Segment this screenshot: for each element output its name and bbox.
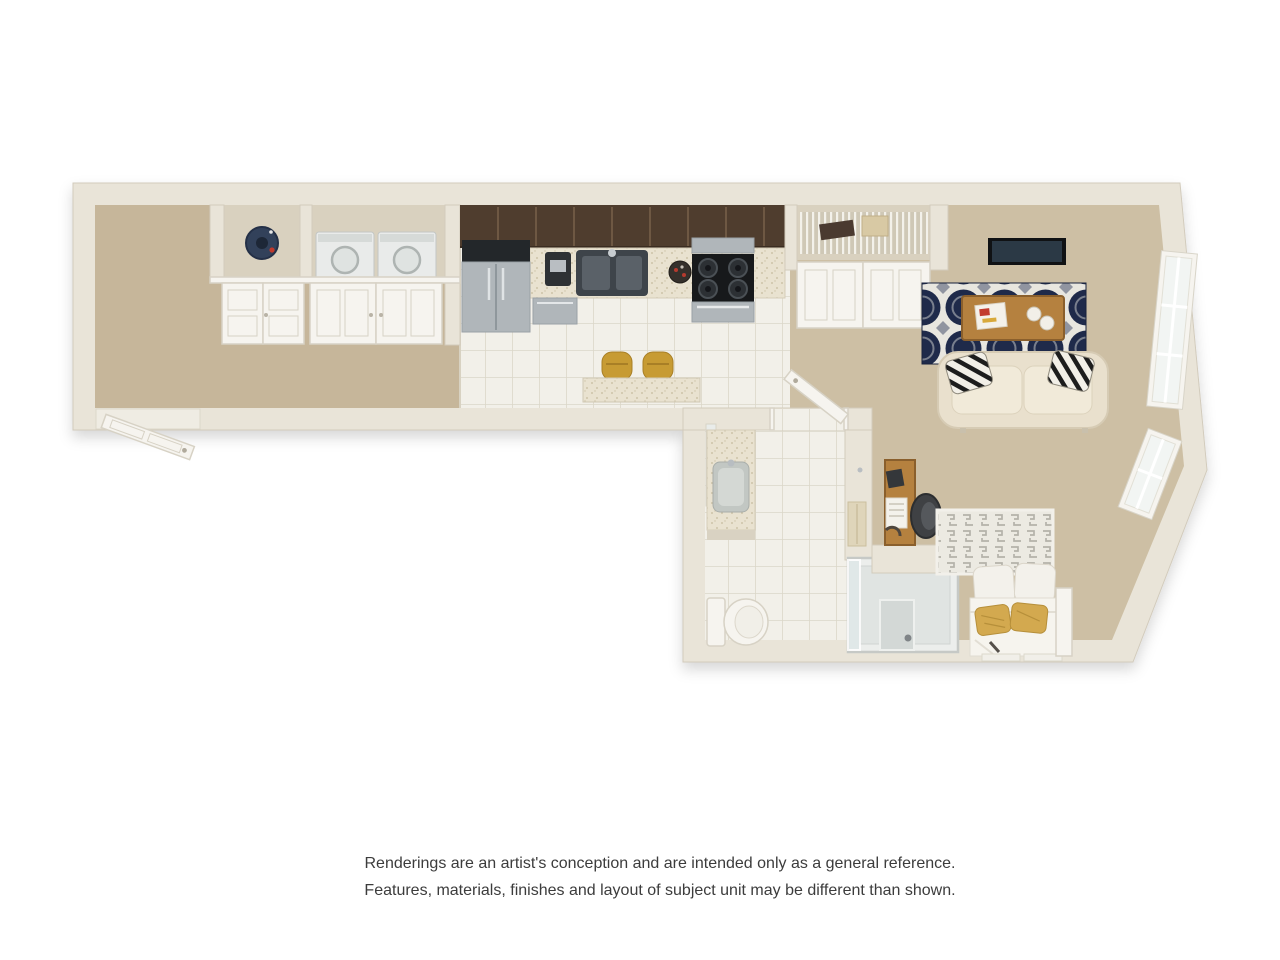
breakfast-bar <box>583 378 700 402</box>
bed-pillow <box>1014 563 1056 603</box>
faucet <box>728 460 735 467</box>
gold-pillow <box>1010 602 1049 634</box>
toilet <box>707 598 768 646</box>
laundry-closet-doors <box>310 283 442 344</box>
shower-door <box>880 600 914 650</box>
coffee-maker <box>545 252 571 286</box>
faucet <box>608 249 616 257</box>
door-knob <box>264 313 268 317</box>
gold-pillow <box>974 604 1012 636</box>
coffee-table <box>962 296 1064 340</box>
closet-divider-wall <box>210 205 224 283</box>
water-heater <box>246 227 278 259</box>
bed-base <box>982 654 1020 661</box>
pantry-wall <box>785 205 797 270</box>
sofa-leg <box>960 428 966 433</box>
wall-mounted-tv <box>988 238 1066 265</box>
side-panel <box>1056 588 1072 656</box>
closet-divider-wall <box>445 205 460 345</box>
pantry-wall <box>930 205 948 270</box>
dryer <box>378 232 436 280</box>
utility-closet <box>210 205 300 283</box>
washer <box>316 232 374 280</box>
floor-plan-rendering <box>0 0 1280 830</box>
refrigerator <box>462 240 530 332</box>
decor-bowl <box>669 261 691 283</box>
paper <box>886 498 907 528</box>
entry-door <box>96 409 200 460</box>
sofa-leg <box>1082 428 1088 433</box>
storage-box <box>862 216 888 236</box>
kitchen-sink <box>576 249 648 296</box>
oven-front <box>692 302 754 322</box>
closet-header <box>210 277 460 283</box>
utility-closet-doors <box>222 283 304 344</box>
door-knob <box>369 313 373 317</box>
floor-plan-page: Renderings are an artist's conception an… <box>0 0 1280 960</box>
camera <box>886 469 905 489</box>
magazine <box>975 302 1007 329</box>
gas-range <box>692 254 754 322</box>
toilet-tank <box>707 598 725 646</box>
disclaimer-line-1: Renderings are an artist's conception an… <box>20 850 1280 877</box>
cup <box>1040 316 1054 330</box>
robe-hook <box>858 468 863 473</box>
shower-door-handle <box>905 635 912 642</box>
disclaimer-line-2: Features, materials, finishes and layout… <box>20 877 1280 904</box>
pantry-doors <box>797 262 930 328</box>
door-knob <box>379 313 383 317</box>
bar-stool <box>602 352 632 380</box>
dishwasher <box>533 298 577 324</box>
bar-stool <box>643 352 673 380</box>
closet-divider-wall <box>300 205 312 283</box>
cup <box>1027 307 1041 321</box>
loveseat-sofa <box>938 349 1108 433</box>
shower-glass <box>848 560 860 650</box>
desk <box>885 460 915 545</box>
vanity-sink <box>707 430 755 540</box>
disclaimer: Renderings are an artist's conception an… <box>20 850 1280 904</box>
microwave <box>692 238 754 253</box>
